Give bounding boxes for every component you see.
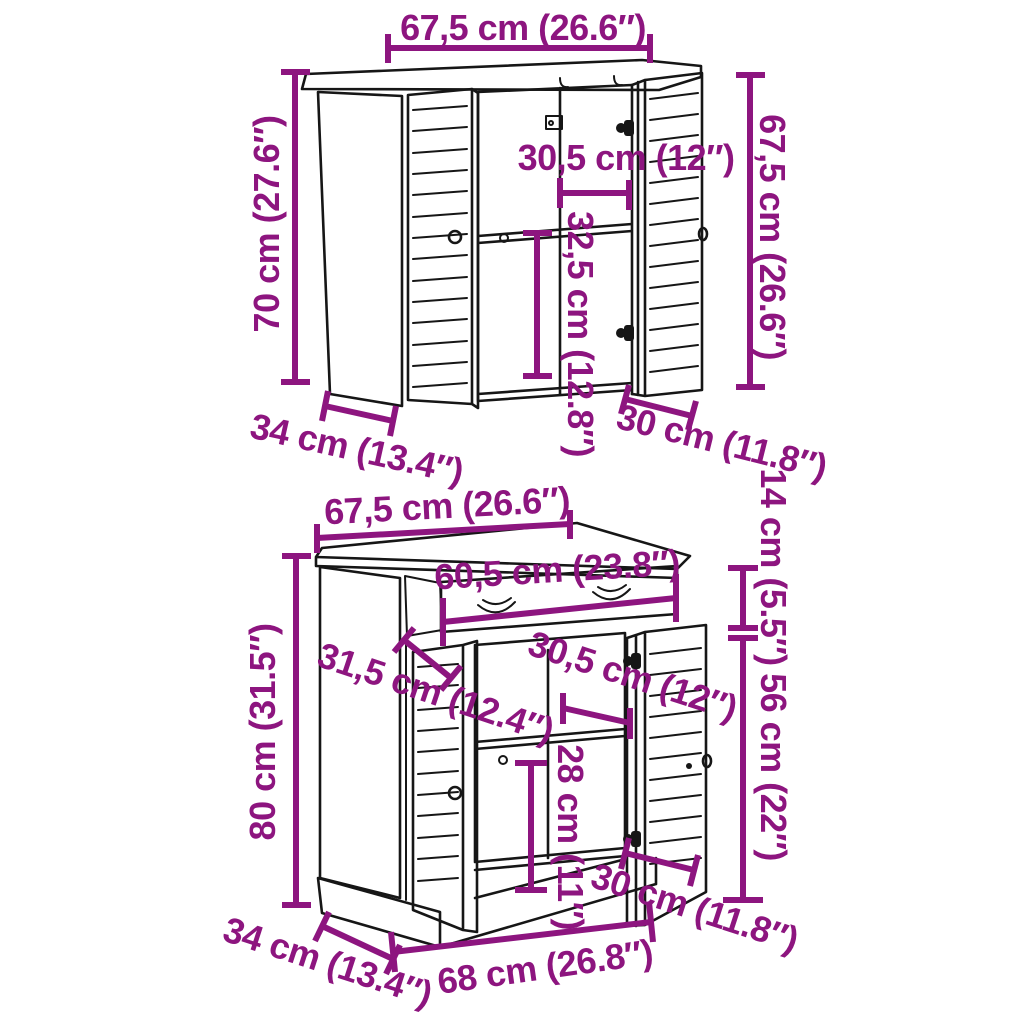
hinge-icon bbox=[624, 120, 634, 136]
hinge-icon bbox=[631, 831, 641, 847]
dim-bottom-inner-height bbox=[515, 763, 547, 890]
bottom-drawer-width-label: 60,5 cm (23.8″) bbox=[433, 542, 681, 598]
top-cabinet-left-door-louvers bbox=[413, 106, 467, 387]
top-cabinet-left-door-knob bbox=[449, 231, 461, 243]
bottom-cabinet-side-panel bbox=[320, 567, 400, 898]
bottom-inner-depth-label: 31,5 cm (12.4″) bbox=[313, 634, 559, 751]
top-cabinet-side-panel bbox=[318, 92, 402, 406]
hinge-icon bbox=[624, 325, 634, 341]
bottom-drawer-height-label: 14 cm (5.5″) bbox=[753, 468, 794, 665]
bottom-inner-height-label: 28 cm (11″) bbox=[550, 744, 591, 930]
dim-top-inner-width bbox=[560, 178, 629, 210]
top-cabinet-drawing bbox=[302, 60, 707, 408]
top-cabinet-top-slab bbox=[302, 60, 701, 90]
top-door-width-label: 30 cm (11.8″) bbox=[613, 396, 831, 488]
top-cabinet-right-door bbox=[632, 73, 702, 396]
top-cabinet-carcass bbox=[478, 85, 632, 401]
top-cabinet-left-door bbox=[408, 89, 478, 408]
furniture-dimension-diagram: 67,5 cm (26.6″) 70 cm (27.6″) 30,5 cm (1… bbox=[0, 0, 1024, 1024]
drawer-side bbox=[405, 576, 442, 900]
top-height-left-label: 70 cm (27.6″) bbox=[246, 116, 287, 333]
top-width-top-label: 67,5 cm (26.6″) bbox=[400, 7, 646, 48]
top-height-right-label: 67,5 cm (26.6″) bbox=[752, 114, 793, 360]
dim-top-inner-height bbox=[523, 233, 552, 376]
top-depth-label: 34 cm (13.4″) bbox=[247, 405, 468, 492]
dim-bottom-height-left bbox=[282, 556, 311, 905]
top-inner-width-label: 30,5 cm (12″) bbox=[518, 137, 735, 178]
bottom-door-height-label: 56 cm (22″) bbox=[753, 673, 794, 861]
top-inner-height-label: 32,5 cm (12.8″) bbox=[560, 211, 601, 457]
top-cabinet-right-door-louvers bbox=[650, 93, 698, 372]
bottom-height-left-label: 80 cm (31.5″) bbox=[242, 624, 283, 841]
dimension-labels: 67,5 cm (26.6″) 70 cm (27.6″) 30,5 cm (1… bbox=[218, 7, 831, 1014]
bottom-depth-label: 34 cm (13.4″) bbox=[218, 908, 437, 1014]
knob-dot bbox=[686, 763, 692, 769]
door-latch-hole bbox=[549, 121, 553, 125]
shelf-pin bbox=[499, 756, 507, 764]
